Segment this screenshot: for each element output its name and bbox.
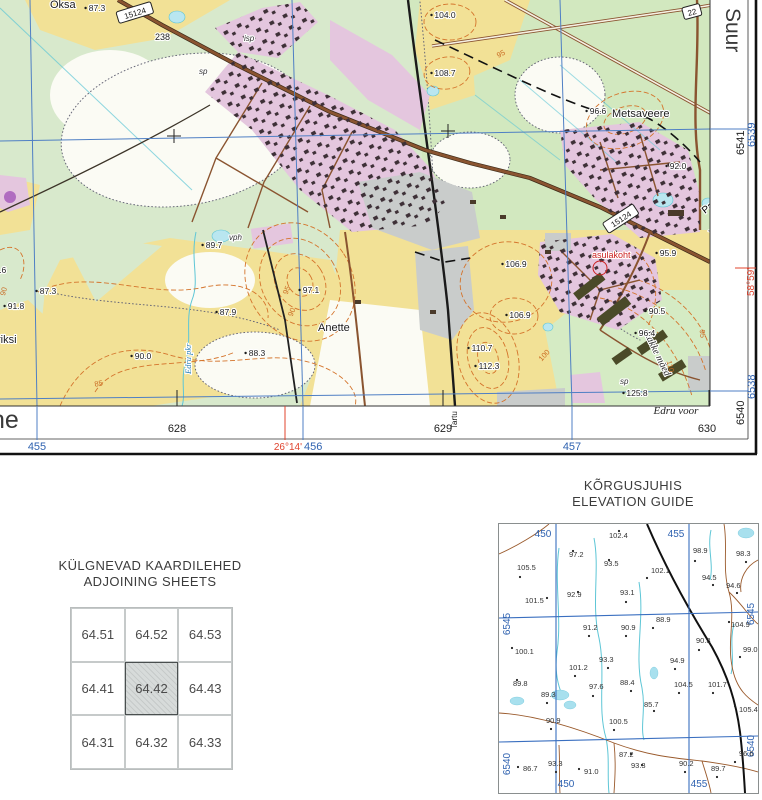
elevation-point-dot [588, 635, 590, 637]
guide-streams [556, 530, 734, 793]
elevation-point-dot [736, 592, 738, 594]
elevation-point-label: 90.2 [679, 759, 694, 768]
spot-height-dot [505, 314, 507, 316]
elevation-point-label: 97.6 [589, 682, 604, 691]
elevation-point-label: 94.5 [702, 573, 717, 582]
elevation-point-dot [630, 690, 632, 692]
elevation-point-label: 93.1 [620, 588, 635, 597]
label-asulakoht: asulakoht [592, 250, 631, 260]
elevation-point-label: 102.1 [651, 566, 670, 575]
spot-height-dot [501, 263, 503, 265]
elevation-guide-title-et: KÕRGUSJUHIS [510, 478, 756, 494]
margin-place-name-left: ne [0, 406, 19, 434]
spot-height-label: 89.7 [206, 240, 223, 250]
elevation-point-label: 90.9 [621, 623, 636, 632]
adjoining-sheets-title: KÜLGNEVAD KAARDILEHED ADJOINING SHEETS [40, 558, 260, 590]
abbrev-vph: vph [229, 233, 242, 242]
elevation-point-label: 92.9 [567, 590, 582, 599]
elevation-point-dot [694, 560, 696, 562]
elevation-point-dot [511, 647, 513, 649]
spot-height-label: 95.9 [660, 248, 677, 258]
spot-height-dot [298, 289, 300, 291]
guide-easting-450-top: 450 [535, 529, 552, 540]
spot-height-dot [665, 165, 667, 167]
elevation-point-label: 88.4 [620, 678, 635, 687]
elevation-point-dot [546, 597, 548, 599]
elevation-point-dot [734, 761, 736, 763]
sheet-cell-64-33: 64.33 [178, 715, 232, 769]
elevation-point-label: 104.5 [674, 680, 693, 689]
elevation-point-label: 94.9 [670, 656, 685, 665]
spot-height-label: 88.3 [249, 348, 266, 358]
longitude-label: 26°14' [274, 442, 302, 453]
elevation-point-dot [517, 766, 519, 768]
spot-height-label: 125.8 [626, 388, 648, 398]
elevation-point-dot [607, 667, 609, 669]
elevation-point-label: 87.2 [619, 750, 634, 759]
guide-easting-455-bottom: 455 [691, 779, 708, 790]
place-label-oksa: Oksa [50, 0, 77, 11]
elevation-point-dot [574, 675, 576, 677]
spot-height-dot [3, 305, 5, 307]
sheet-cell-64-53: 64.53 [178, 608, 232, 662]
guide-railway [647, 524, 745, 793]
place-label-anette: Anette [318, 322, 350, 334]
elevation-point-dot [674, 668, 676, 670]
northing-6538: 6538 [746, 375, 758, 399]
elevation-point-label: 91.0 [584, 767, 599, 776]
spot-height-label: 90.0 [135, 351, 152, 361]
elevation-point-label: 96.6 [739, 749, 754, 758]
elevation-point-label: 98.3 [736, 549, 751, 558]
easting-456: 456 [304, 441, 322, 453]
spot-height-label: 96.4 [639, 328, 656, 338]
elevation-point-dot [698, 649, 700, 651]
elevation-point-label: 90.3 [696, 636, 711, 645]
elevation-point-label: 90.9 [546, 716, 561, 725]
spot-height-label: 106.9 [505, 259, 527, 269]
spot-height-dot [585, 110, 587, 112]
spot-height-label: 110.7 [472, 343, 493, 353]
spot-height-label: 97.1 [303, 285, 320, 295]
spot-height-dot [201, 244, 203, 246]
elevation-point-label: 98.9 [693, 546, 708, 555]
elevation-point-label: 93.3 [599, 655, 614, 664]
spot-height-dot [244, 352, 246, 354]
elevation-point-dot [739, 656, 741, 658]
elevation-point-label: 86.7 [523, 764, 538, 773]
adjoining-sheets-title-en: ADJOINING SHEETS [40, 574, 260, 590]
spot-height-dot [644, 310, 646, 312]
sheet-cell-64-41: 64.41 [71, 662, 125, 716]
elevation-point-dot [578, 768, 580, 770]
easting-455: 455 [28, 441, 46, 453]
spot-height-label: 93.6 [0, 265, 7, 275]
spot-height-label: 87.9 [220, 307, 237, 317]
sheet-cell-64-51: 64.51 [71, 608, 125, 662]
spot-height-dot [430, 14, 432, 16]
abbrev-sp2: sp [620, 377, 629, 386]
elevation-point-label: 101.7 [708, 680, 727, 689]
spot-height-dot [655, 252, 657, 254]
contour-label: 95 [698, 329, 708, 338]
spot-height-dot [634, 332, 636, 334]
elevation-point-label: 102.4 [609, 531, 628, 540]
elevation-point-dot [652, 627, 654, 629]
elevation-point-label: 93.5 [604, 559, 619, 568]
elevation-point-dot [646, 577, 648, 579]
elevation-point-label: 105.4 [739, 705, 758, 714]
easting-457: 457 [563, 441, 581, 453]
sheet-cell-64-31: 64.31 [71, 715, 125, 769]
spot-height-label: 90.5 [649, 306, 666, 316]
abbrev-sp: sp [199, 67, 208, 76]
spot-height-label: 104.0 [434, 10, 456, 20]
place-label-riksi: riksi [0, 334, 17, 346]
margin-place-name-right: Suur [721, 8, 744, 52]
elevation-point-dot [550, 728, 552, 730]
elevation-point-dot [728, 621, 730, 623]
km-post-238: 238 [155, 32, 170, 42]
spot-height-label: 112.3 [479, 361, 500, 371]
elevation-point-label: 88.9 [656, 615, 671, 624]
sheet-cell-64-42-current: 64.42 [125, 662, 179, 716]
spot-height-dot [622, 392, 624, 394]
elevation-point-label: 97.2 [569, 550, 584, 559]
map-sheet-page: { "map": { "labels": { "oksa": "Oksa", "… [0, 0, 762, 800]
spot-height-dot [130, 355, 132, 357]
elevation-point-label: 105.5 [517, 563, 536, 572]
spot-height-label: 108.7 [434, 68, 456, 78]
landform-label-edru-voor: Edru voor [653, 405, 700, 417]
elevation-point-label: 89.3 [541, 690, 556, 699]
spot-height-label: 92.0 [670, 161, 687, 171]
elevation-guide-title-en: ELEVATION GUIDE [510, 494, 756, 510]
elevation-point-dot [625, 635, 627, 637]
elevation-point-label: 101.5 [525, 596, 544, 605]
adjoining-sheets-grid: 64.51 64.52 64.53 64.41 64.42 64.43 64.3… [70, 607, 233, 770]
spot-height-label: 91.8 [8, 301, 25, 311]
elevation-point-dot [712, 584, 714, 586]
guide-northing-6545-left: 6545 [502, 612, 513, 635]
guide-easting-450-bottom: 450 [558, 779, 575, 790]
spot-height-dot [474, 365, 476, 367]
elevation-point-label: 99.0 [743, 645, 758, 654]
place-label-metsaveere: Metsaveere [612, 108, 669, 120]
elevation-guide-title: KÕRGUSJUHIS ELEVATION GUIDE [510, 478, 756, 510]
elevation-point-dot [653, 710, 655, 712]
elevation-point-dot [684, 771, 686, 773]
northing-6540: 6540 [735, 401, 747, 425]
elevation-point-dot [546, 702, 548, 704]
elevation-point-dot [519, 576, 521, 578]
spot-height-dot [84, 7, 86, 9]
elevation-point-label: 94.6 [726, 581, 741, 590]
elevation-point-label: 101.2 [569, 663, 588, 672]
sheet-cell-64-52: 64.52 [125, 608, 179, 662]
elevation-point-label: 100.1 [515, 647, 534, 656]
elevation-point-label: 89.8 [513, 679, 528, 688]
spot-height-dot [430, 72, 432, 74]
elevation-point-dot [592, 695, 594, 697]
spot-height-dot [215, 311, 217, 313]
guide-northing-6540-left: 6540 [502, 752, 513, 775]
easting-630: 630 [698, 423, 716, 435]
elevation-point-dot [716, 776, 718, 778]
topographic-map: Oksa Metsaveere Anette riksi Paasvere Vä… [0, 0, 762, 458]
elevation-point-label: 89.7 [711, 764, 726, 773]
adjoining-sheets-title-et: KÜLGNEVAD KAARDILEHED [40, 558, 260, 574]
spot-height-label: 106.9 [509, 310, 531, 320]
elevation-point-dot [734, 705, 736, 707]
elevation-point-label: 85.7 [644, 700, 659, 709]
elevation-point-dot [625, 601, 627, 603]
sheet-cell-64-43: 64.43 [178, 662, 232, 716]
elevation-point-dot [613, 729, 615, 731]
northing-6539: 6539 [746, 123, 758, 147]
place-label-vagara: Vägara [708, 213, 727, 235]
spot-height-dot [467, 347, 469, 349]
latitude-label: 58°59' [746, 268, 757, 296]
spot-height-label: 96.6 [590, 106, 607, 116]
elevation-point-label: 93.3 [631, 761, 646, 770]
elevation-point-label: 104.9 [731, 620, 750, 629]
elevation-point-dot [678, 692, 680, 694]
road-destination-tartu: Tartu [450, 411, 459, 429]
abbrev-isp: isp [244, 34, 255, 43]
map-content [0, 0, 714, 410]
spot-height-dot [35, 290, 37, 292]
spot-height-label: 87.3 [40, 286, 57, 296]
guide-easting-455-top: 455 [668, 529, 685, 540]
elevation-point-dot [745, 561, 747, 563]
elevation-point-label: 100.5 [609, 717, 628, 726]
sheet-cell-64-32: 64.32 [125, 715, 179, 769]
easting-628: 628 [168, 423, 186, 435]
elevation-point-dot [712, 692, 714, 694]
elevation-point-label: 91.2 [583, 623, 598, 632]
elevation-point-dot [555, 771, 557, 773]
contour-label: 85 [94, 378, 104, 388]
elevation-guide-map: 450 455 450 455 6545 6540 6545 6540 102.… [498, 523, 759, 794]
elevation-point-label: 93.3 [548, 759, 563, 768]
stream-label-edru-pkr: Edru pkr [183, 343, 193, 375]
spot-height-label: 87.3 [89, 3, 106, 13]
